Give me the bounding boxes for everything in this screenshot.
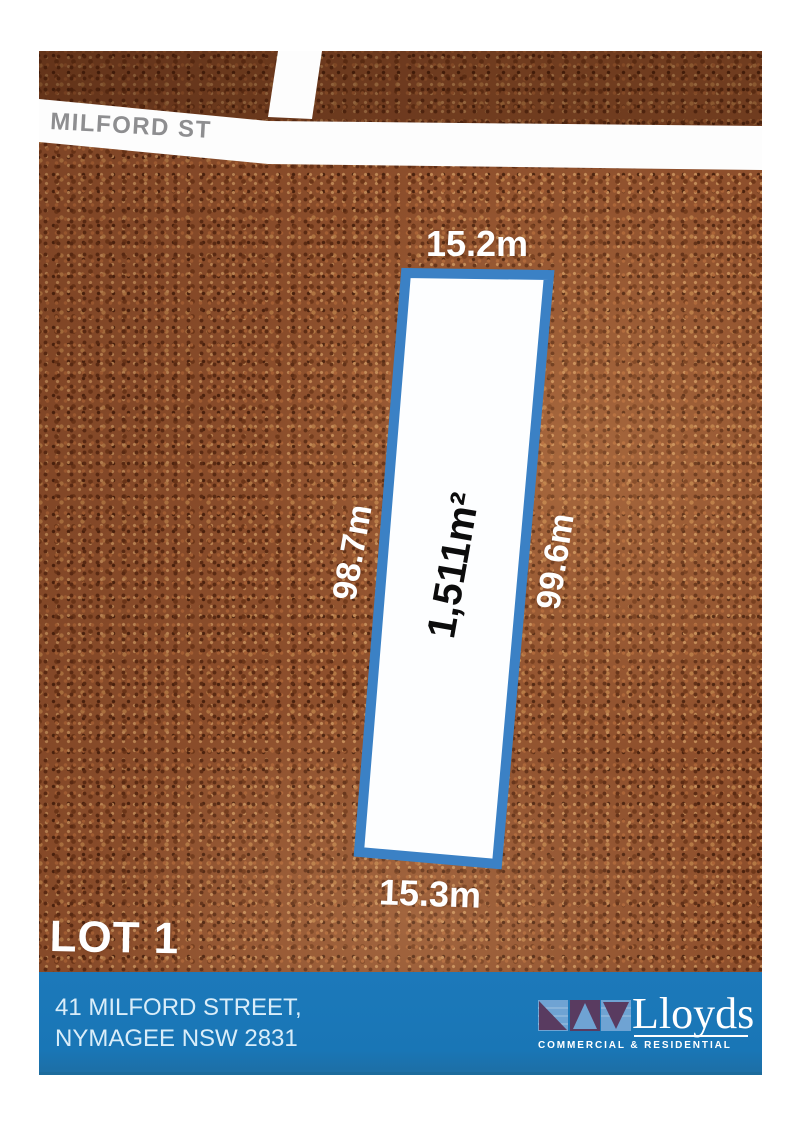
property-flyer: MILFORD ST 15.2m 98.7m 99.6m 15.3m 1,511… (0, 0, 800, 1131)
dimension-bottom: 15.3m (359, 871, 500, 918)
brand-name: Lloyds (632, 992, 754, 1036)
brand-underline (634, 1035, 748, 1037)
lloyds-logo: Lloyds COMMERCIAL & RESIDENTIAL (538, 996, 750, 1054)
dimension-top: 15.2m (407, 223, 547, 265)
footer-banner: 41 MILFORD STREET, NYMAGEE NSW 2831 Lloy… (39, 972, 762, 1075)
aerial-photo: MILFORD ST 15.2m 98.7m 99.6m 15.3m 1,511… (39, 51, 762, 972)
lot-number-label: LOT 1 (49, 912, 180, 964)
map-overlay (39, 51, 762, 972)
brand-tagline: COMMERCIAL & RESIDENTIAL (538, 1040, 750, 1051)
address-line-1: 41 MILFORD STREET, (55, 992, 302, 1023)
lloyds-squares-icon (538, 1000, 631, 1031)
address-line-2: NYMAGEE NSW 2831 (55, 1023, 302, 1054)
property-address: 41 MILFORD STREET, NYMAGEE NSW 2831 (55, 992, 302, 1054)
